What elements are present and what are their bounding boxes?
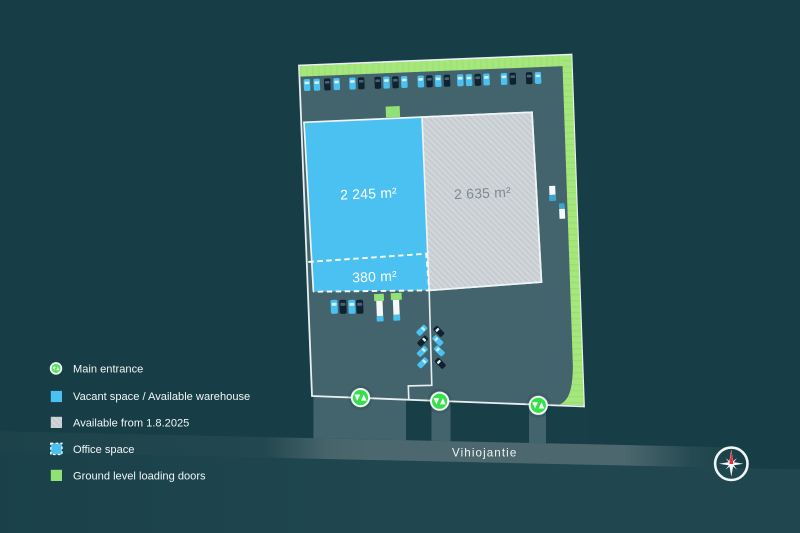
svg-text:Available from 1.8.2025: Available from 1.8.2025 <box>73 418 189 430</box>
svg-text:Main entrance: Main entrance <box>73 364 143 376</box>
svg-text:380 m²: 380 m² <box>352 268 398 286</box>
svg-text:2 635 m²: 2 635 m² <box>454 184 512 202</box>
svg-text:2 245 m²: 2 245 m² <box>340 184 398 202</box>
svg-text:Ground level loading doors: Ground level loading doors <box>73 471 206 483</box>
svg-text:Office space: Office space <box>73 444 134 456</box>
svg-text:Vihiojantie: Vihiojantie <box>452 446 517 459</box>
svg-text:Vacant space / Available wareh: Vacant space / Available warehouse <box>73 391 250 403</box>
